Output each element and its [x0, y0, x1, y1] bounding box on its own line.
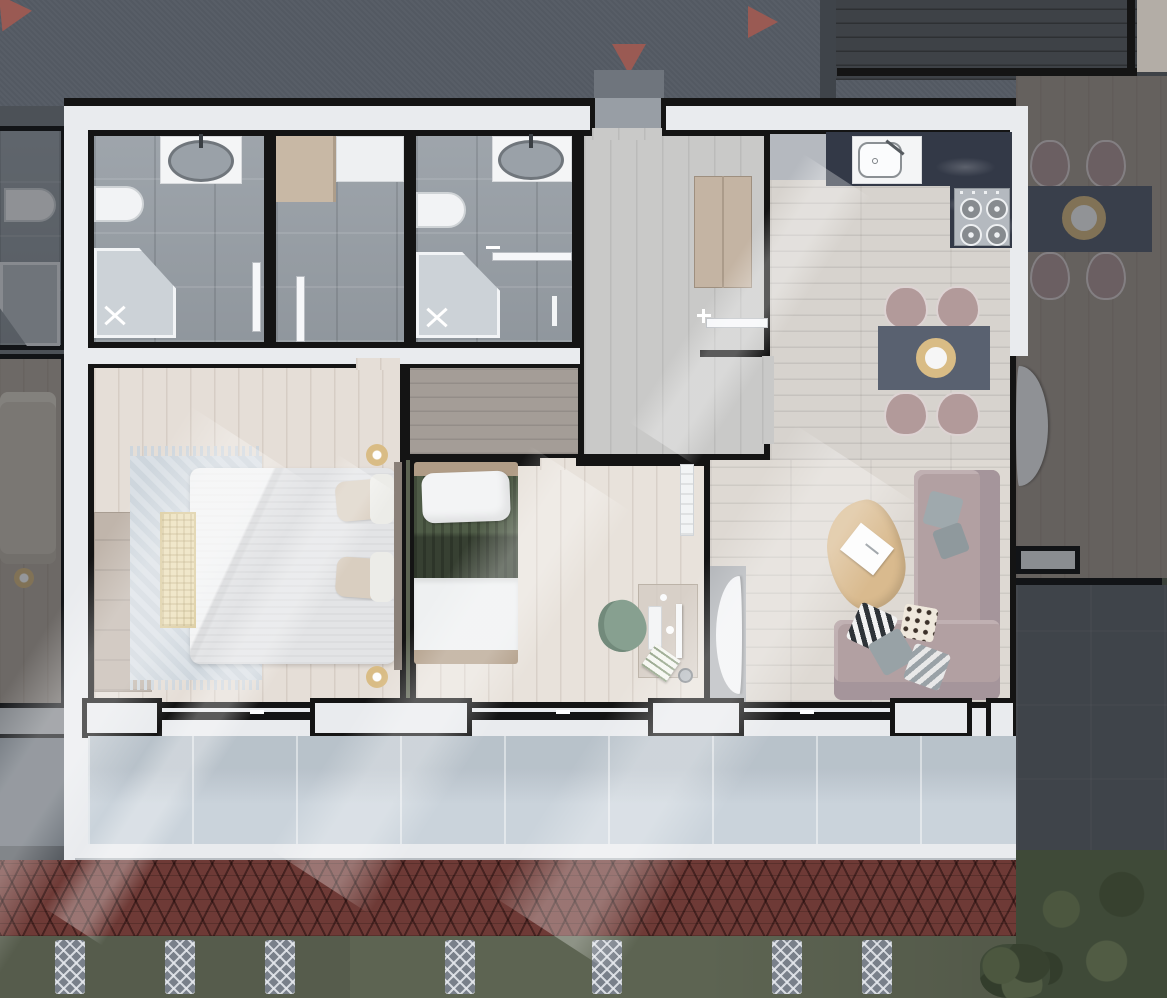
- neighbor-right-chair: [1030, 252, 1070, 300]
- neighbor-right-terrace-wall: [1016, 578, 1162, 585]
- fence-post: [265, 940, 295, 994]
- wall-pier: [82, 698, 162, 738]
- dining-chair: [884, 392, 928, 436]
- stove-burner-icon: [986, 224, 1008, 246]
- corridor: [404, 362, 584, 460]
- kitchen-drain-icon: [872, 158, 878, 164]
- nightstand-lamp-icon: [366, 444, 388, 466]
- wall-pier: [310, 698, 472, 738]
- single-bed-pillow: [421, 470, 511, 523]
- outer-wall-top: [64, 98, 1020, 106]
- monitor-stand-icon: [666, 626, 674, 634]
- wall-pier: [890, 698, 972, 738]
- neighbor-left-toilet: [4, 188, 56, 222]
- entrance-threshold: [590, 98, 666, 132]
- kitchen-door: [706, 318, 768, 328]
- neighbor-right-chair: [1086, 140, 1126, 188]
- roof-wall-line-horizontal: [837, 68, 1137, 76]
- outer-wall-band: [64, 106, 1016, 130]
- sliding-door-handle-icon: [800, 710, 814, 714]
- entrance-door-gap: [592, 128, 662, 140]
- fence-post: [445, 940, 475, 994]
- balcony: [88, 736, 1016, 846]
- storage-door: [296, 276, 305, 342]
- sliding-door: [162, 712, 310, 720]
- bath2-toilet-icon: [416, 192, 466, 228]
- bush-small: [980, 944, 1050, 998]
- table-centerpiece-icon: [916, 338, 956, 378]
- neighbor-left-balcony: [0, 738, 64, 846]
- neighbor-right-chair: [1086, 252, 1126, 300]
- mouse-icon: [660, 594, 667, 601]
- stove-burner-icon: [960, 198, 982, 220]
- rug-fringe-bottom: [130, 680, 262, 690]
- floor-plan-scene: [0, 0, 1167, 998]
- kitchen-door-handle-cross: [702, 309, 705, 323]
- roof-wall-line-vertical: [1127, 0, 1135, 76]
- fence-post: [772, 940, 802, 994]
- sliding-door-handle-icon: [250, 710, 264, 714]
- master-bedroom-door-gap: [356, 358, 400, 370]
- neighbor-right-sill: [1016, 546, 1080, 574]
- fence-post: [592, 940, 622, 994]
- bed-bench: [160, 512, 196, 628]
- bath2-door-handle-icon: [486, 246, 500, 249]
- storage-appliance: [336, 136, 404, 182]
- dining-chair: [936, 392, 980, 436]
- radiator-icon: [680, 464, 694, 536]
- entrance-step: [594, 70, 664, 98]
- fence-post: [55, 940, 85, 994]
- second-bedroom-door-gap: [540, 458, 576, 470]
- nightstand-lamp-icon: [366, 666, 388, 688]
- sofa-pillow-polka: [899, 603, 938, 642]
- dining-chair: [936, 286, 980, 330]
- red-roof-edge: [0, 860, 1016, 936]
- headboard: [394, 462, 402, 670]
- bed-pillow-white: [370, 474, 394, 524]
- neighbor-left-bed: [0, 392, 56, 564]
- party-wall-bright: [1016, 106, 1028, 356]
- storage-shelf: [276, 136, 336, 202]
- neighbor-right-centerpiece: [1062, 196, 1106, 240]
- rug-fringe-top: [130, 446, 262, 456]
- neighbor-left-lamp: [14, 568, 34, 588]
- bath1-toilet-icon: [94, 186, 144, 222]
- sliding-door-handle-icon: [556, 710, 570, 714]
- stove-knobs-icon: [960, 191, 1004, 194]
- bed-pillow-white: [370, 552, 394, 602]
- fence-post: [165, 940, 195, 994]
- waste-bin-icon: [678, 668, 693, 683]
- stove-burner-icon: [960, 224, 982, 246]
- bath2-door: [492, 252, 572, 261]
- dining-chair: [884, 286, 928, 330]
- single-bed-sheet: [414, 578, 518, 650]
- bath2-towel-bar-icon: [552, 296, 557, 326]
- wall-below-bathrooms: [88, 348, 580, 364]
- bath1-door: [252, 262, 261, 332]
- sliding-door: [744, 712, 890, 720]
- neighbor-right-terrace: [1016, 585, 1167, 854]
- fridge-block: [770, 134, 826, 180]
- neighbor-right-chair: [1030, 140, 1070, 188]
- monitor-icon: [676, 604, 682, 658]
- roof-corner-floor: [1137, 0, 1167, 72]
- roof-arrow-right-icon: [748, 6, 778, 38]
- bath1-faucet-icon: [199, 134, 203, 148]
- bath2-faucet-icon: [529, 134, 533, 148]
- hall-nook-wall: [700, 350, 768, 357]
- outer-wall-left: [64, 106, 88, 860]
- stove-burner-icon: [986, 198, 1008, 220]
- neighbor-left-sill: [0, 704, 64, 738]
- wall-pier: [648, 698, 744, 738]
- hall-cabinet-divider: [722, 176, 724, 288]
- roof-divider: [820, 0, 836, 106]
- fence-post: [862, 940, 892, 994]
- kitchen-door-gap: [762, 356, 774, 444]
